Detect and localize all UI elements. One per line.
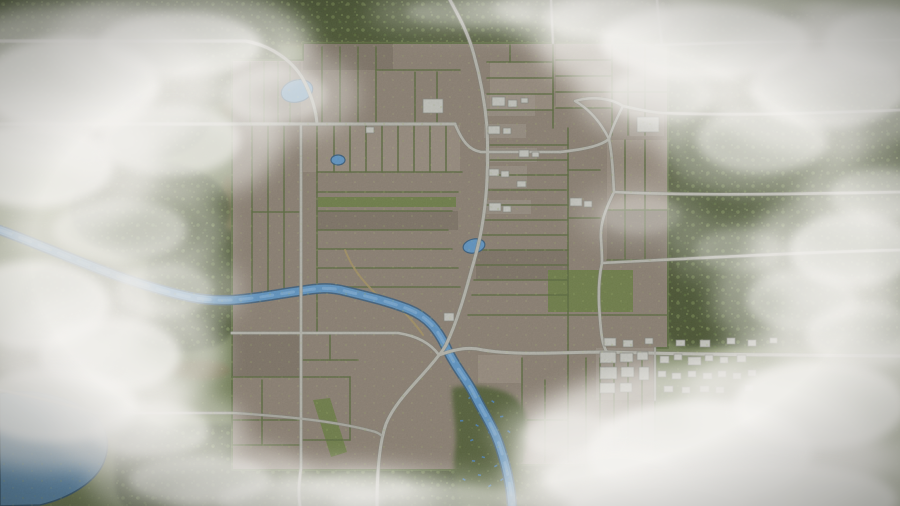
map-canvas bbox=[0, 0, 900, 506]
vignette bbox=[0, 0, 900, 506]
game-map-screenshot bbox=[0, 0, 900, 506]
